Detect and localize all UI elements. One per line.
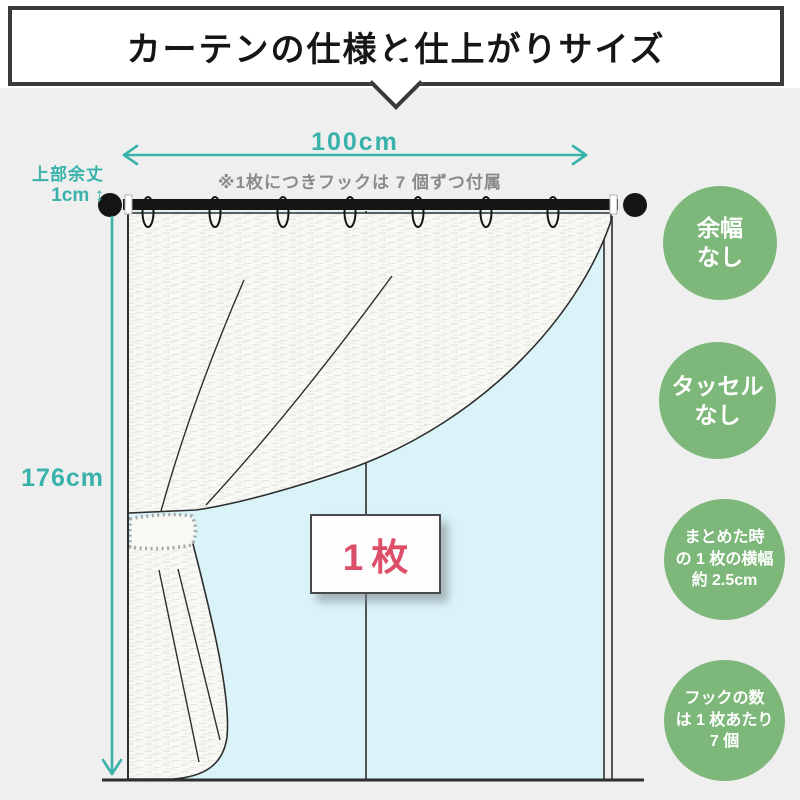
badge-no-tassel: タッセル なし bbox=[659, 342, 776, 459]
badge-line: なし bbox=[697, 243, 743, 272]
badge-no-extra-width: 余幅 なし bbox=[663, 186, 777, 300]
panel-count-label: 1枚 bbox=[335, 527, 417, 581]
hook-note: ※1枚につきフックは 7 個ずつ付属 bbox=[130, 168, 590, 193]
top-allowance-text: 上部余丈 bbox=[0, 165, 104, 185]
top-allowance-label: 上部余丈 1cm ↕ bbox=[0, 165, 104, 208]
badge-line: 7 個 bbox=[710, 731, 739, 753]
badge-line: 余幅 bbox=[697, 214, 743, 243]
badge-line: まとめた時 bbox=[684, 527, 764, 549]
badge-bundled-width: まとめた時 の 1 枚の横幅 約 2.5cm bbox=[664, 499, 785, 620]
tieback-band bbox=[130, 515, 196, 549]
badge-line: タッセル bbox=[672, 372, 764, 401]
badge-line: なし bbox=[695, 401, 741, 430]
header-banner: カーテンの仕様と仕上がりサイズ bbox=[8, 6, 784, 86]
badge-line: フックの数 bbox=[684, 688, 764, 710]
badge-line: の 1 枚の横幅 bbox=[676, 549, 774, 571]
badge-line: 約 2.5cm bbox=[692, 570, 758, 592]
rod-end-ball-right bbox=[623, 193, 647, 217]
height-dimension-label: 176cm bbox=[0, 464, 104, 493]
badge-line: は 1 枚あたり bbox=[676, 710, 774, 732]
width-dimension-label: 100cm bbox=[255, 128, 455, 157]
panel-count-box: 1枚 bbox=[310, 514, 441, 594]
badge-hook-count: フックの数 は 1 枚あたり 7 個 bbox=[664, 660, 785, 781]
top-allowance-value: 1cm ↕ bbox=[0, 185, 104, 208]
